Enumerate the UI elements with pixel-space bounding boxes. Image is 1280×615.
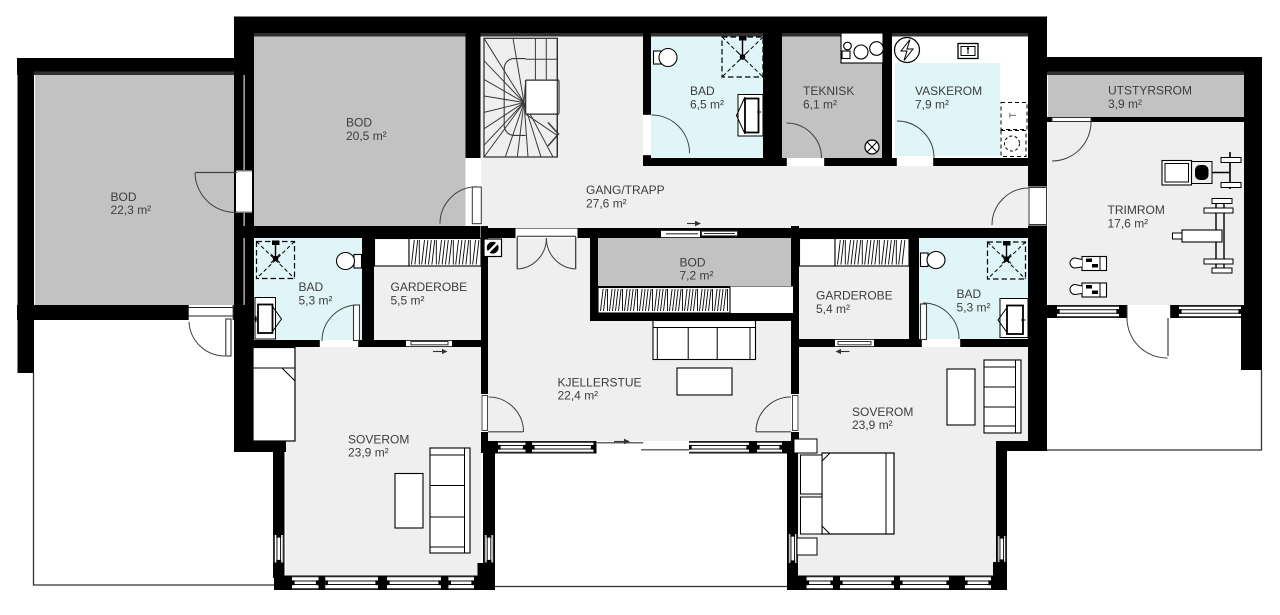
svg-text:BAD: BAD [957, 287, 982, 301]
svg-text:SOVEROM: SOVEROM [852, 405, 913, 419]
svg-text:GARDEROBE: GARDEROBE [816, 289, 893, 303]
svg-text:22,3 m²: 22,3 m² [111, 203, 152, 217]
svg-text:BAD: BAD [299, 280, 324, 294]
svg-text:7,9 m²: 7,9 m² [915, 98, 949, 112]
svg-text:23,9 m²: 23,9 m² [348, 446, 389, 460]
svg-text:TEKNISK: TEKNISK [803, 84, 854, 98]
svg-text:BOD: BOD [680, 256, 706, 270]
svg-text:5,4 m²: 5,4 m² [816, 302, 850, 316]
svg-text:7,2 m²: 7,2 m² [680, 269, 714, 283]
svg-text:5,5 m²: 5,5 m² [391, 294, 425, 308]
svg-text:3,9 m²: 3,9 m² [1108, 97, 1142, 111]
svg-text:VASKEROM: VASKEROM [915, 84, 982, 98]
svg-text:BOD: BOD [111, 190, 137, 204]
svg-text:27,6 m²: 27,6 m² [586, 197, 627, 211]
svg-text:6,1 m²: 6,1 m² [803, 98, 837, 112]
svg-text:BOD: BOD [346, 116, 372, 130]
svg-text:GARDEROBE: GARDEROBE [391, 280, 468, 294]
svg-text:SOVEROM: SOVEROM [348, 433, 409, 447]
svg-text:5,3 m²: 5,3 m² [299, 294, 333, 308]
svg-text:5,3 m²: 5,3 m² [957, 301, 991, 315]
svg-text:6,5 m²: 6,5 m² [690, 98, 724, 112]
svg-text:T: T [1008, 112, 1018, 118]
svg-text:UTSTYRSROM: UTSTYRSROM [1108, 84, 1192, 98]
svg-text:17,6 m²: 17,6 m² [1108, 217, 1149, 231]
svg-text:KJELLERSTUE: KJELLERSTUE [558, 376, 642, 390]
svg-text:GANG/TRAPP: GANG/TRAPP [586, 183, 665, 197]
svg-text:20,5 m²: 20,5 m² [346, 129, 387, 143]
svg-text:23,9 m²: 23,9 m² [852, 418, 893, 432]
svg-text:TRIMROM: TRIMROM [1108, 203, 1165, 217]
svg-text:22,4 m²: 22,4 m² [558, 389, 599, 403]
svg-text:BAD: BAD [690, 84, 715, 98]
